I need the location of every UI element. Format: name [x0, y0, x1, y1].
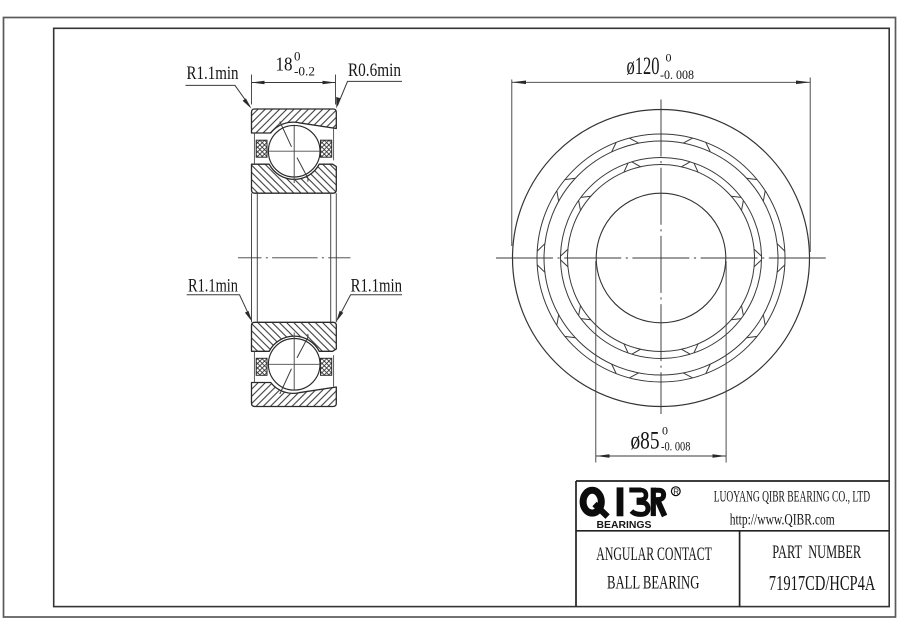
- svg-text:R: R: [673, 487, 679, 496]
- svg-text:ANGULAR CONTACT: ANGULAR CONTACT: [596, 544, 712, 565]
- svg-text:-0. 008: -0. 008: [661, 439, 690, 454]
- svg-text:71917CD/HCP4A: 71917CD/HCP4A: [769, 571, 876, 595]
- svg-text:BALL BEARING: BALL BEARING: [607, 572, 700, 593]
- svg-text:R0.6min: R0.6min: [348, 60, 401, 81]
- svg-text:LUOYANG QIBR BEARING CO., LTD: LUOYANG QIBR BEARING CO., LTD: [714, 488, 870, 505]
- svg-text:0: 0: [662, 424, 668, 438]
- svg-text:0: 0: [666, 51, 672, 65]
- svg-text:R1.1min: R1.1min: [351, 275, 403, 296]
- svg-text:-0.2: -0.2: [294, 64, 315, 79]
- svg-text:ø85: ø85: [631, 428, 660, 455]
- svg-text:http://www.QIBR.com: http://www.QIBR.com: [730, 511, 835, 528]
- svg-text:PART NUMBER: PART NUMBER: [772, 542, 861, 563]
- svg-text:ø120: ø120: [627, 53, 660, 80]
- svg-text:BEARINGS: BEARINGS: [597, 520, 652, 531]
- svg-text:R1.1min: R1.1min: [187, 63, 239, 84]
- svg-text:R1.1min: R1.1min: [188, 275, 238, 296]
- svg-text:0: 0: [294, 49, 301, 64]
- svg-text:18: 18: [276, 55, 293, 76]
- svg-text:-0. 008: -0. 008: [660, 67, 694, 82]
